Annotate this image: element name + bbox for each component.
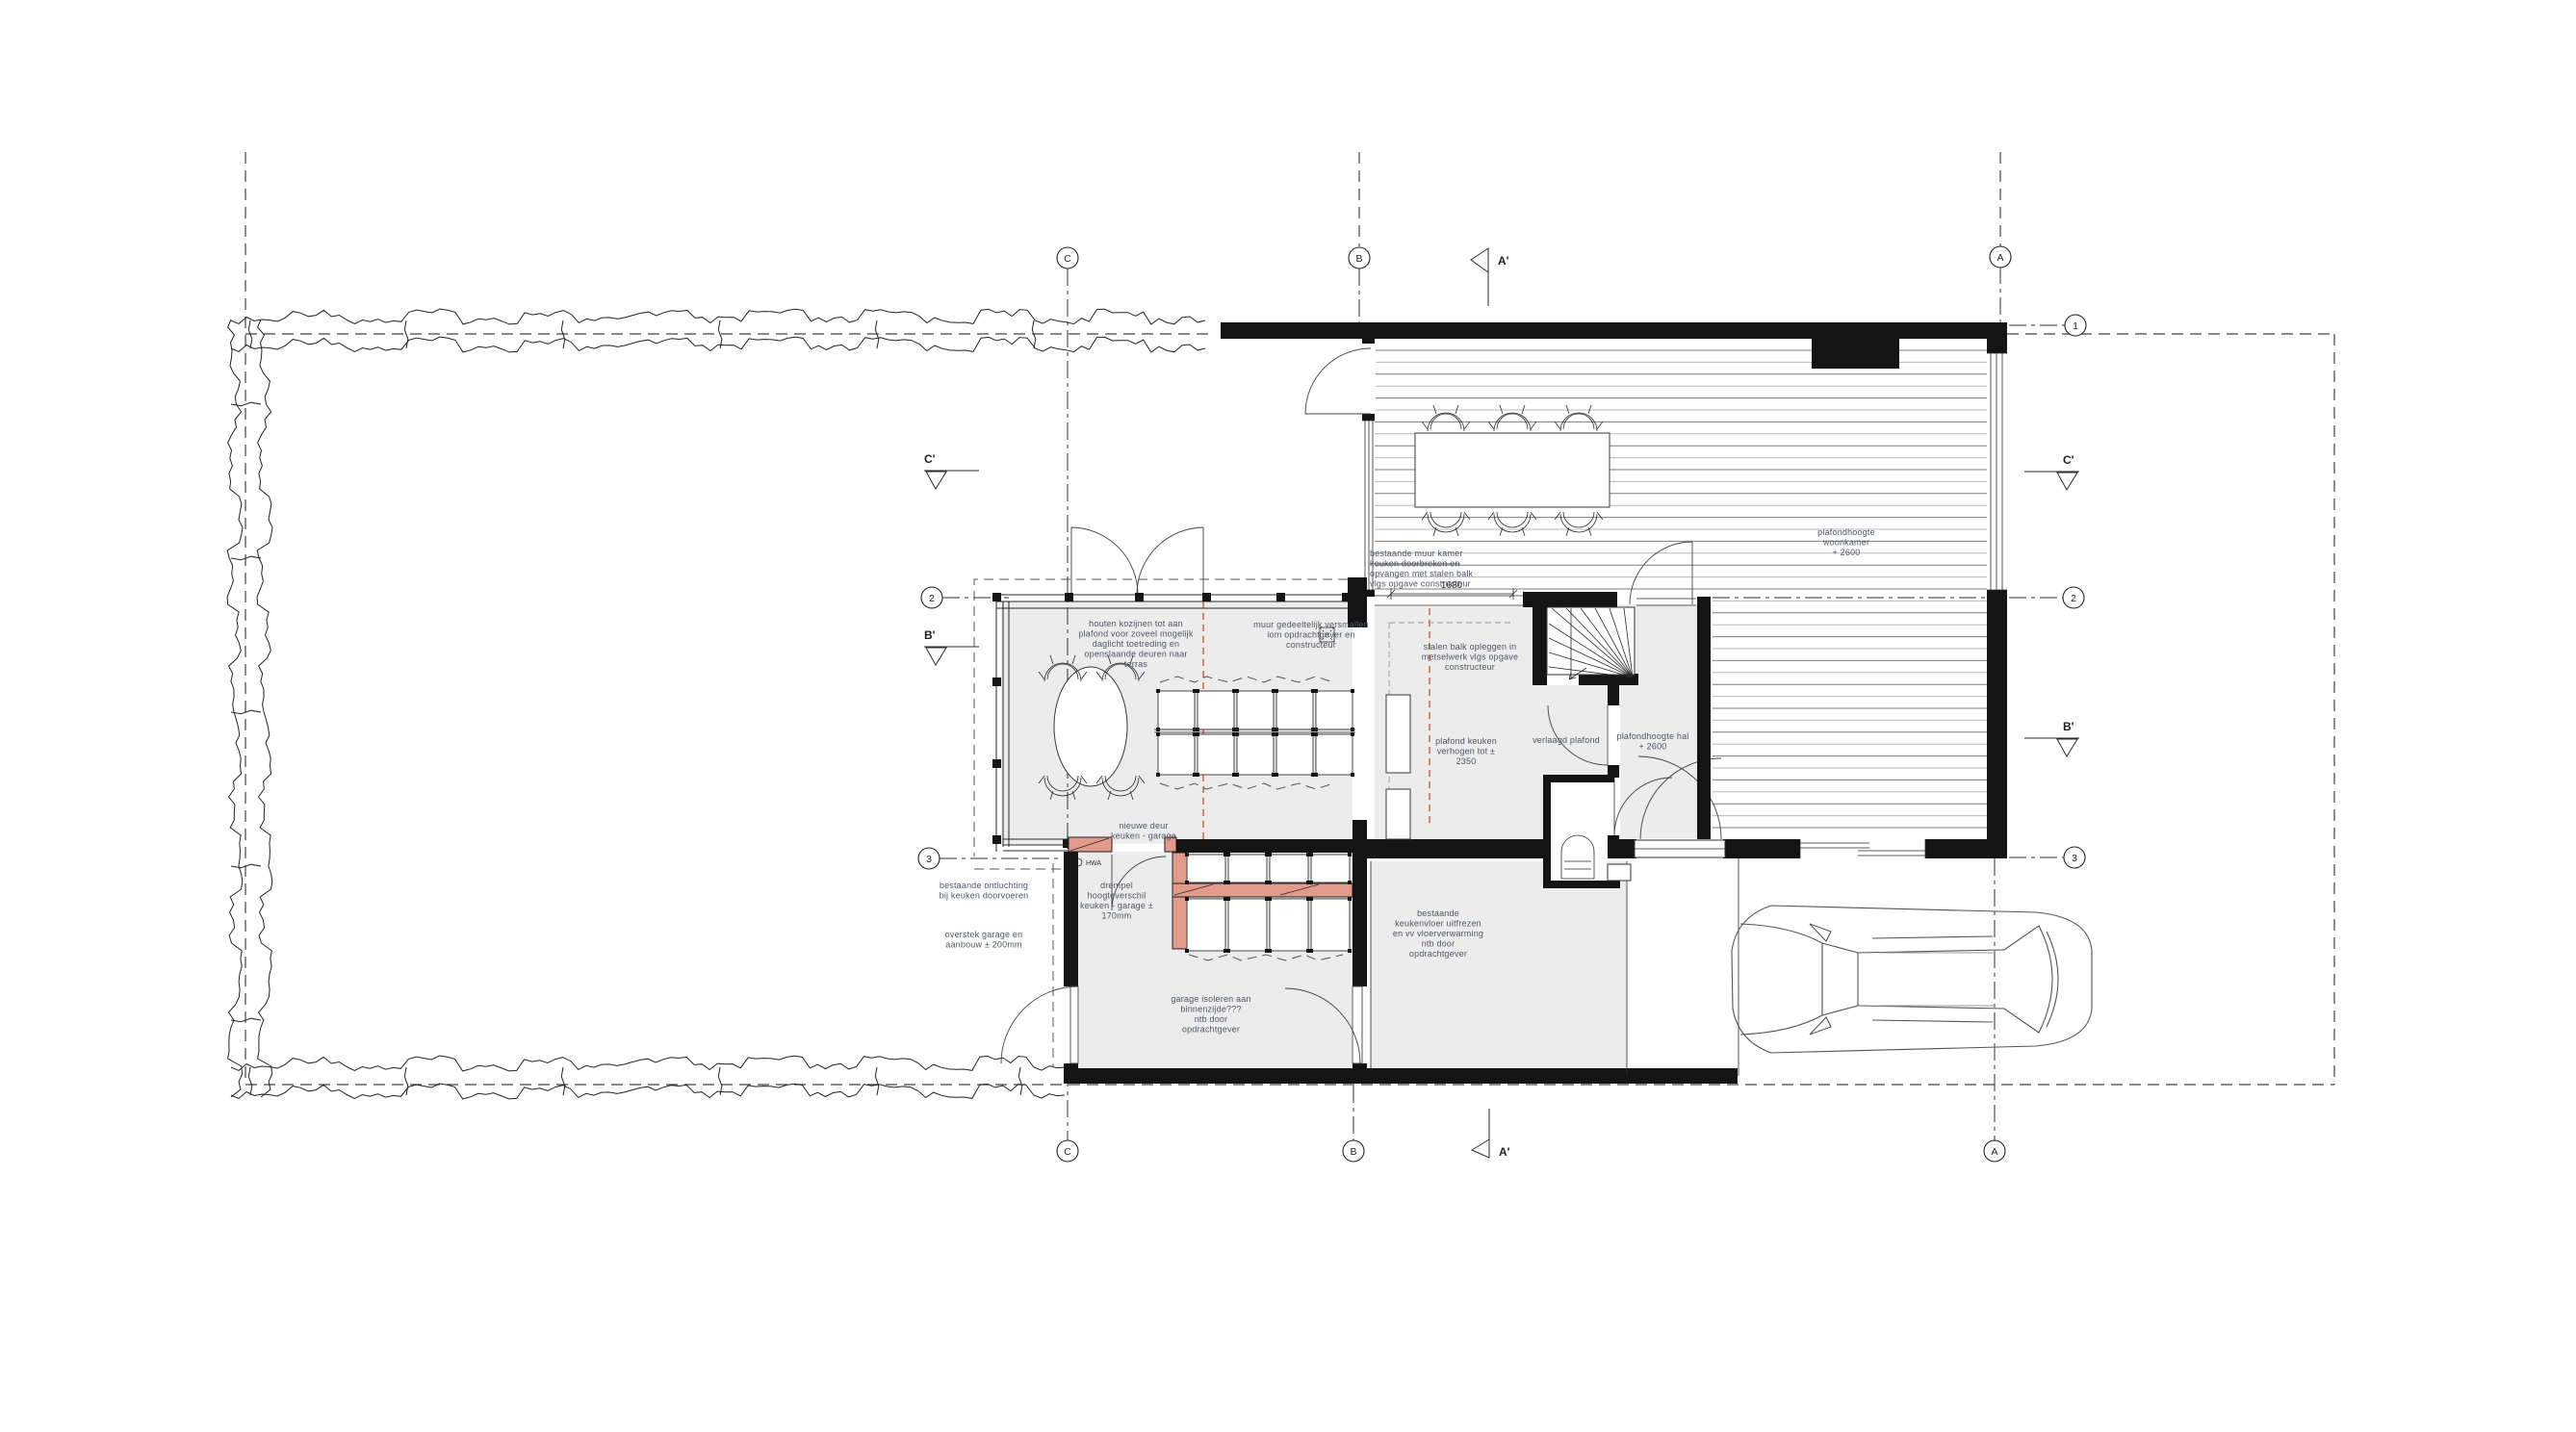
- svg-text:1: 1: [2073, 320, 2078, 332]
- living-door-leaf: [1630, 542, 1692, 604]
- car: [1732, 906, 2092, 1053]
- kitchen-opening-sill: [1375, 596, 1523, 605]
- grid-marker-2-left: 2: [921, 587, 942, 608]
- svg-text:B': B': [2063, 720, 2074, 733]
- grid-marker-b-bottom: B: [1343, 1140, 1364, 1162]
- section-marker-b-left: B': [924, 628, 979, 665]
- section-marker-a-top: A': [1471, 248, 1509, 306]
- east-window: [1987, 353, 2007, 590]
- svg-text:2: 2: [929, 593, 935, 604]
- svg-text:C': C': [924, 452, 936, 466]
- terrace-double-doors: [1071, 527, 1203, 595]
- hwa-label: HWA: [1086, 860, 1101, 867]
- svg-text:C': C': [2063, 453, 2074, 467]
- wall-hall-east: [1697, 597, 1711, 839]
- living-door-sill: [1636, 599, 1696, 605]
- svg-text:B': B': [924, 628, 936, 642]
- section-marker-b-right: B': [2024, 720, 2079, 756]
- garage-west-door-gap: [1063, 986, 1079, 1063]
- toilet-wall-bottom: [1543, 881, 1620, 888]
- floor-plan-canvas: HWA: [0, 0, 2576, 1432]
- wall-south-outer: [1064, 1068, 1738, 1084]
- grid-marker-a-bottom: A: [1984, 1140, 2005, 1162]
- section-marker-a-bottom: A': [1472, 1109, 1510, 1159]
- garage-kitchen-unit: [1172, 853, 1352, 960]
- grid-marker-c-top: C: [1057, 247, 1078, 268]
- toilet-wall-left: [1543, 775, 1551, 888]
- svg-text:B: B: [1355, 253, 1362, 265]
- hall-door-gap-2: [1607, 778, 1620, 835]
- svg-text:2: 2: [2071, 593, 2076, 604]
- oval-dining-table: [1054, 667, 1127, 786]
- dining-table: [1415, 433, 1610, 507]
- grid-marker-b-top: B: [1349, 247, 1370, 268]
- wall-north: [1221, 322, 2007, 339]
- grid-marker-3-left: 3: [918, 848, 940, 869]
- svg-text:A: A: [1991, 1146, 1997, 1158]
- stair-body: [1547, 607, 1635, 675]
- section-marker-c-left: C': [924, 452, 979, 489]
- grid-marker-2-right: 2: [2063, 587, 2084, 608]
- ext-south-wall-east: [1176, 839, 1352, 853]
- west-door-gap: [1361, 344, 1376, 414]
- toilet-interior: [1550, 781, 1608, 881]
- section-marker-c-right: C': [2024, 453, 2079, 490]
- note-verlaagd-plafond: verlaagd plafond: [1533, 735, 1600, 745]
- stair-wall-top: [1523, 592, 1617, 607]
- grid-marker-3-right: 3: [2064, 847, 2085, 868]
- svg-text:A: A: [1996, 252, 2003, 264]
- door-step: [1608, 864, 1631, 881]
- toilet-wall-top: [1543, 775, 1614, 782]
- svg-text:C: C: [1064, 1146, 1071, 1158]
- note-ontluchting: bestaande ontluchtingbij keuken doorvoer…: [940, 881, 1029, 901]
- svg-text:C: C: [1064, 253, 1071, 265]
- svg-text:3: 3: [2072, 853, 2077, 864]
- old-kitchen-cabinet-1: [1386, 695, 1410, 773]
- grid-marker-a-top: A: [1990, 246, 2011, 268]
- note-overstek: overstek garage enaanbouw ± 200mm: [945, 930, 1023, 950]
- note-nieuwe-deur: nieuwe deurkeuken - garage: [1111, 821, 1176, 841]
- patio-floor: [1371, 861, 1627, 1071]
- grid-marker-c-bottom: C: [1057, 1140, 1078, 1162]
- note-bestaande-muur: bestaande muur kamerkeuken doorbreken en…: [1370, 549, 1474, 589]
- svg-text:3: 3: [926, 854, 932, 865]
- west-exterior-door-arc: [1305, 348, 1371, 414]
- pier-kitchen-sw: [1352, 820, 1367, 841]
- svg-text:A': A': [1498, 254, 1509, 268]
- svg-text:A': A': [1499, 1145, 1510, 1159]
- stair-wall-left: [1533, 606, 1547, 685]
- svg-text:B: B: [1350, 1146, 1356, 1158]
- grid-marker-1-right: 1: [2065, 315, 2086, 336]
- old-kitchen-cabinet-2: [1386, 789, 1410, 839]
- chimney-block: [1812, 339, 1899, 369]
